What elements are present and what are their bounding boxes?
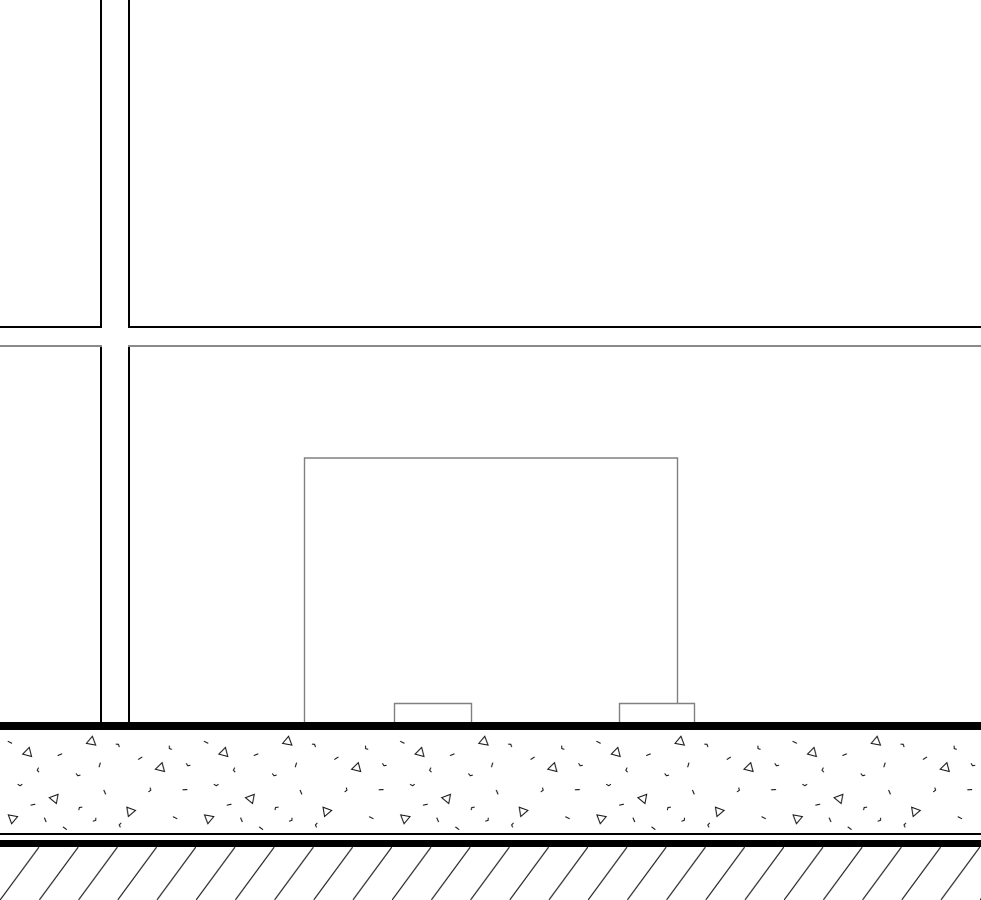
- wall-face-right-lower-segment[interactable]: [128, 347, 130, 722]
- wall-face-right-upper-segment[interactable]: [128, 0, 130, 328]
- earth-hatch-band[interactable]: [0, 847, 981, 900]
- wall-face-left-upper-segment[interactable]: [100, 0, 102, 328]
- lower-level-line-right-segment[interactable]: [128, 345, 981, 347]
- concrete-slab-band[interactable]: [0, 730, 981, 833]
- wall-face-left-lower-segment[interactable]: [100, 347, 102, 722]
- floor-slab[interactable]: [0, 722, 981, 847]
- upper-level-line-left-segment[interactable]: [0, 326, 102, 328]
- lower-level-line-left-segment[interactable]: [0, 345, 102, 347]
- upper-level-line-right-segment[interactable]: [128, 326, 981, 328]
- section-drawing-canvas[interactable]: [0, 0, 981, 900]
- upper-level-line[interactable]: [0, 326, 981, 328]
- cad-viewport[interactable]: [0, 0, 981, 900]
- lower-level-line[interactable]: [0, 345, 981, 347]
- slab-bottom-heavy-line[interactable]: [0, 840, 981, 847]
- slab-bottom-thin-line[interactable]: [0, 833, 981, 835]
- slab-top-edge-line[interactable]: [0, 722, 981, 730]
